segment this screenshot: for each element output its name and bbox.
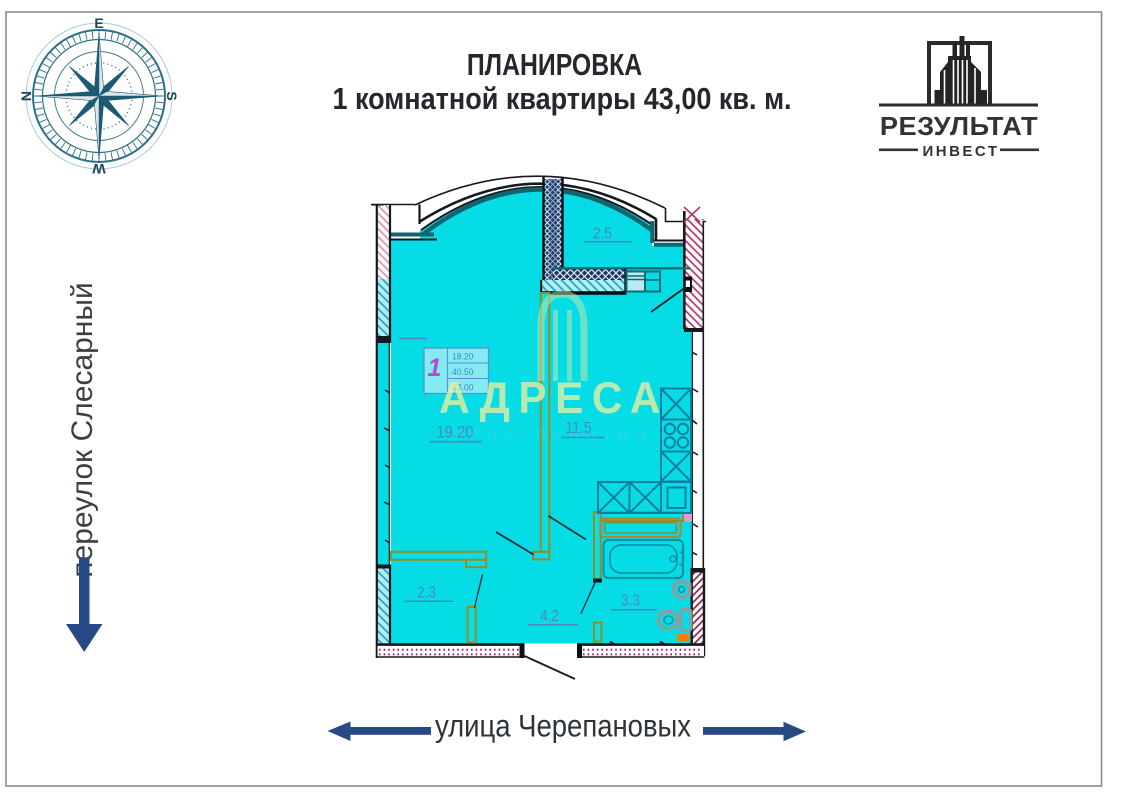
svg-text:переулок Слесарный: переулок Слесарный: [66, 282, 99, 577]
svg-text:АДРЕСА: АДРЕСА: [439, 374, 669, 423]
svg-text:N: N: [18, 91, 34, 101]
svg-text:W: W: [92, 161, 106, 177]
svg-text:18.20: 18.20: [452, 351, 473, 362]
svg-text:ПЛАНИРОВКА: ПЛАНИРОВКА: [467, 47, 642, 81]
svg-text:E: E: [94, 15, 103, 31]
svg-text:1 комнатной квартиры 43,00 кв.: 1 комнатной квартиры 43,00 кв. м.: [332, 82, 791, 116]
svg-text:ИНВЕСТ: ИНВЕСТ: [922, 143, 999, 160]
svg-text:4.2: 4.2: [540, 608, 559, 625]
svg-text:2.5: 2.5: [593, 226, 612, 243]
svg-text:2.3: 2.3: [417, 585, 436, 602]
svg-text:S: S: [164, 91, 180, 100]
svg-text:3.3: 3.3: [621, 593, 640, 610]
svg-text:РЕЗУЛЬТАТ: РЕЗУЛЬТАТ: [880, 112, 1038, 141]
svg-text:улица Черепановых: улица Черепановых: [435, 709, 691, 744]
svg-text:ПРОСТРАНСТВО: ПРОСТРАНСТВО: [453, 427, 653, 443]
